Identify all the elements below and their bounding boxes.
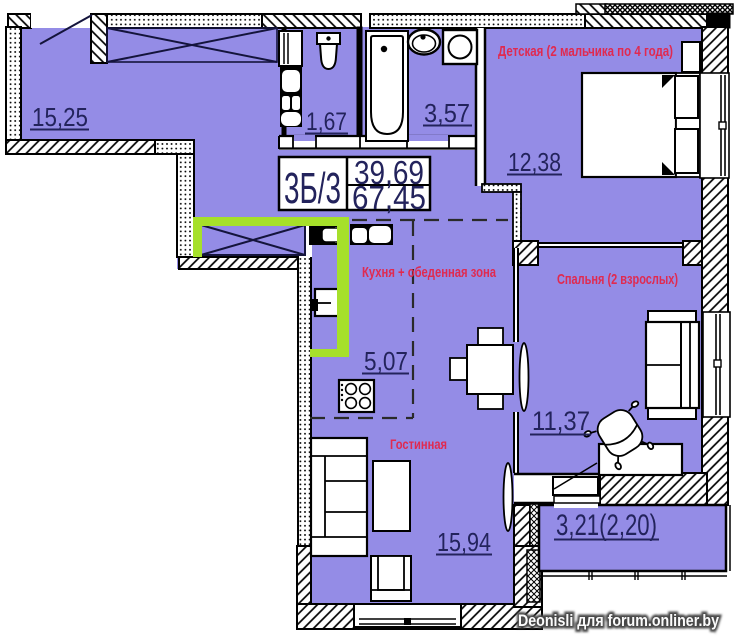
svg-text:5,07: 5,07 xyxy=(364,346,408,376)
svg-text:Кухня + обеденная зона: Кухня + обеденная зона xyxy=(362,264,496,281)
svg-text:11,37: 11,37 xyxy=(532,406,590,436)
svg-text:Гостинная: Гостинная xyxy=(390,436,447,452)
svg-text:1,67: 1,67 xyxy=(306,108,347,136)
svg-text:3Б/3: 3Б/3 xyxy=(284,164,341,213)
svg-text:15,25: 15,25 xyxy=(32,102,88,132)
svg-text:Детская (2 мальчика по 4 года): Детская (2 мальчика по 4 года) xyxy=(498,43,673,60)
svg-text:3,21(2,20): 3,21(2,20) xyxy=(556,509,657,542)
svg-text:12,38: 12,38 xyxy=(508,147,561,177)
svg-text:15,94: 15,94 xyxy=(437,527,491,557)
svg-text:Спальня (2 взрослых): Спальня (2 взрослых) xyxy=(557,271,678,288)
svg-text:3,57: 3,57 xyxy=(424,98,470,128)
svg-text:Deonisli для forum.onliner.by: Deonisli для forum.onliner.by xyxy=(518,611,719,630)
svg-text:67,45: 67,45 xyxy=(352,179,426,216)
